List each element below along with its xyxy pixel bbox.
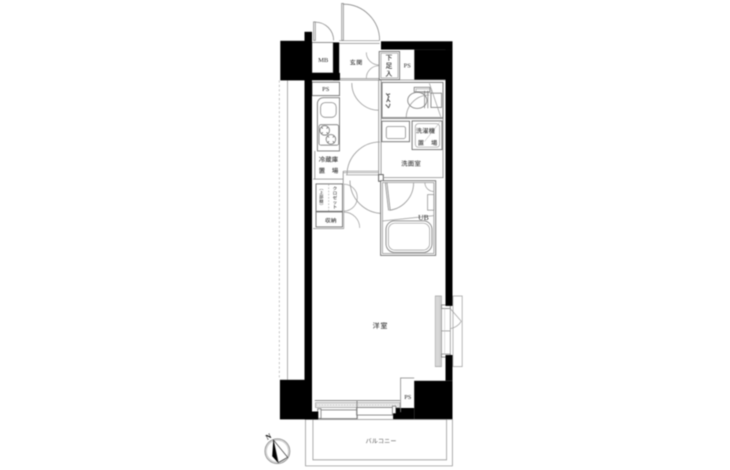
svg-text:PS: PS — [322, 86, 330, 93]
svg-text:PS: PS — [404, 63, 412, 70]
svg-text:UB: UB — [418, 213, 429, 222]
svg-text:PS: PS — [404, 394, 412, 401]
svg-text:MB: MB — [318, 57, 329, 64]
